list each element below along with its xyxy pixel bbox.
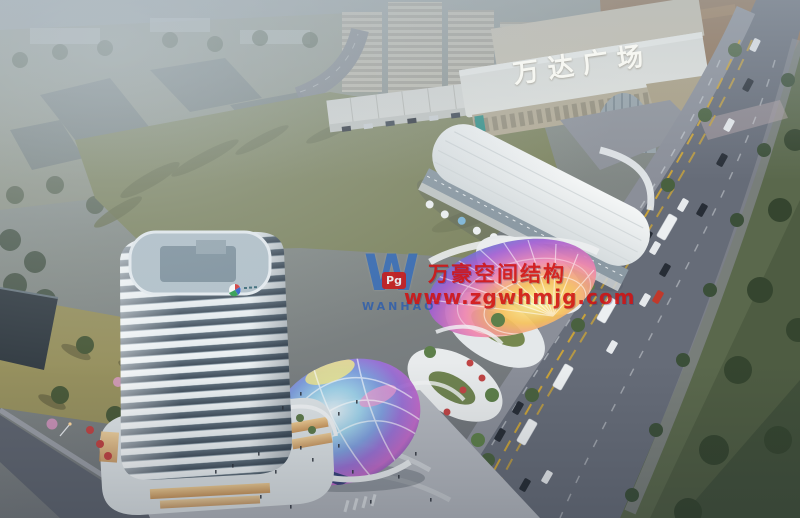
bottom-vignette (0, 0, 800, 518)
aerial-rendering: 万达广场 W Pg WANHAO 万豪空间结构 www.zgwhmjg.com (0, 0, 800, 518)
scene-svg (0, 0, 800, 518)
